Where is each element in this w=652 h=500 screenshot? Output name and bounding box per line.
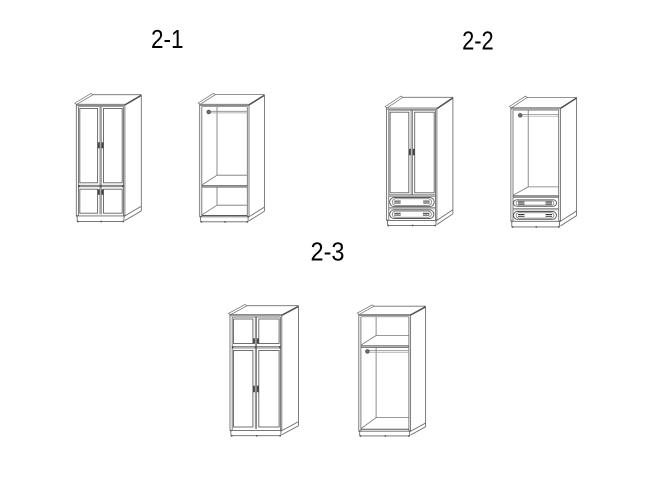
svg-text:2-2: 2-2: [462, 28, 494, 56]
svg-text:2-1: 2-1: [151, 26, 184, 54]
svg-text:2-3: 2-3: [311, 239, 345, 267]
